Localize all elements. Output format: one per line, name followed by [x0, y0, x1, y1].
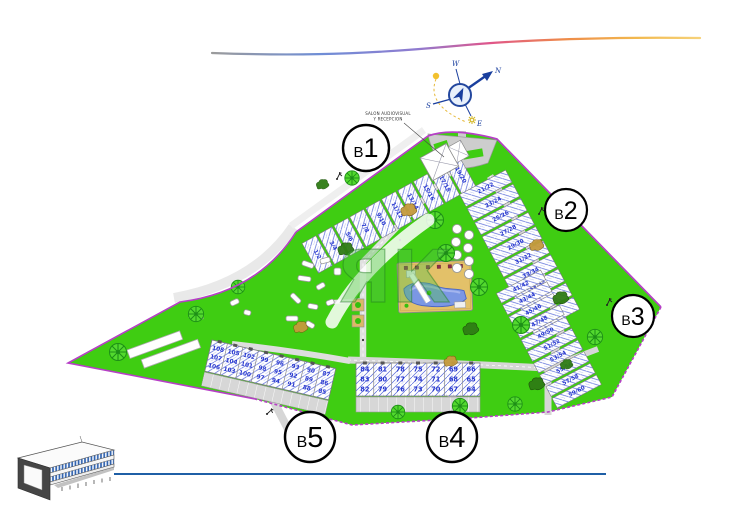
developer-logo: [18, 436, 114, 500]
top-swoosh: [212, 38, 700, 55]
unit-number: 73: [413, 386, 423, 394]
tree-icon: [471, 279, 488, 296]
unit-porch: [398, 362, 402, 365]
unit-porch: [469, 362, 473, 365]
star-icon: [468, 116, 476, 124]
watermark-text: ЯК: [336, 235, 450, 319]
svg-text:Y RECEPCION: Y RECEPCION: [372, 117, 402, 122]
sun-icon: [433, 73, 439, 79]
unit-porch: [434, 362, 438, 365]
unit-number: 64: [467, 386, 477, 394]
tree-icon: [345, 171, 359, 185]
compass-label-e: E: [476, 120, 482, 128]
tree-icon: [391, 405, 405, 419]
unit-number: 83: [360, 376, 370, 384]
unit-number: 75: [413, 366, 423, 374]
compass-label-w: W: [452, 60, 460, 68]
tree-icon: [188, 306, 203, 321]
unit-porch: [363, 362, 367, 365]
site-plan-svg: W N S E 1/23/45/67/89/1011/121: [0, 0, 756, 528]
unit-number: 71: [431, 376, 441, 384]
block-label-b5: B5: [285, 412, 335, 462]
tree-icon: [513, 317, 530, 334]
unit-porch: [416, 362, 420, 365]
unit-number: 69: [449, 366, 459, 374]
pool-steps: [454, 302, 465, 308]
unit-number: 66: [467, 366, 477, 374]
unit-number: 79: [378, 386, 388, 394]
svg-text:SALON AUDIOVISUAL: SALON AUDIOVISUAL: [365, 111, 411, 116]
block-label-b1: B1: [343, 125, 389, 171]
block-label-b3: B3: [612, 295, 654, 337]
unit-number: 80: [378, 376, 388, 384]
compass-label-s: S: [426, 102, 431, 110]
unit-number: 74: [413, 376, 423, 384]
tree-icon: [508, 397, 522, 411]
compass-label-n: N: [494, 67, 502, 75]
block-b4-buildings: 8483828180797877767574737271706968676665…: [356, 362, 480, 397]
unit-number: 81: [378, 366, 388, 374]
site-plan-page: W N S E 1/23/45/67/89/1011/121: [0, 0, 756, 528]
unit-number: 78: [396, 366, 406, 374]
unit-number: 70: [431, 386, 441, 394]
unit-number: 67: [449, 386, 459, 394]
unit-number: 72: [431, 366, 441, 374]
block-label-b2: B2: [545, 189, 587, 231]
unit-number: 76: [396, 386, 406, 394]
unit-number: 82: [360, 386, 370, 394]
watermark: ЯК: [332, 220, 450, 322]
block-label-b4: B4: [427, 412, 477, 462]
unit-number: 65: [467, 376, 477, 384]
unit-number: 84: [360, 366, 370, 374]
compass-icon: W N S E: [426, 60, 502, 128]
survey-marker-icon: [336, 172, 342, 180]
unit-number: 77: [396, 376, 406, 384]
tree-icon: [110, 344, 127, 361]
bush-icon: [316, 179, 329, 189]
unit-number: 68: [449, 376, 459, 384]
tree-icon: [587, 329, 602, 344]
unit-porch: [381, 362, 385, 365]
